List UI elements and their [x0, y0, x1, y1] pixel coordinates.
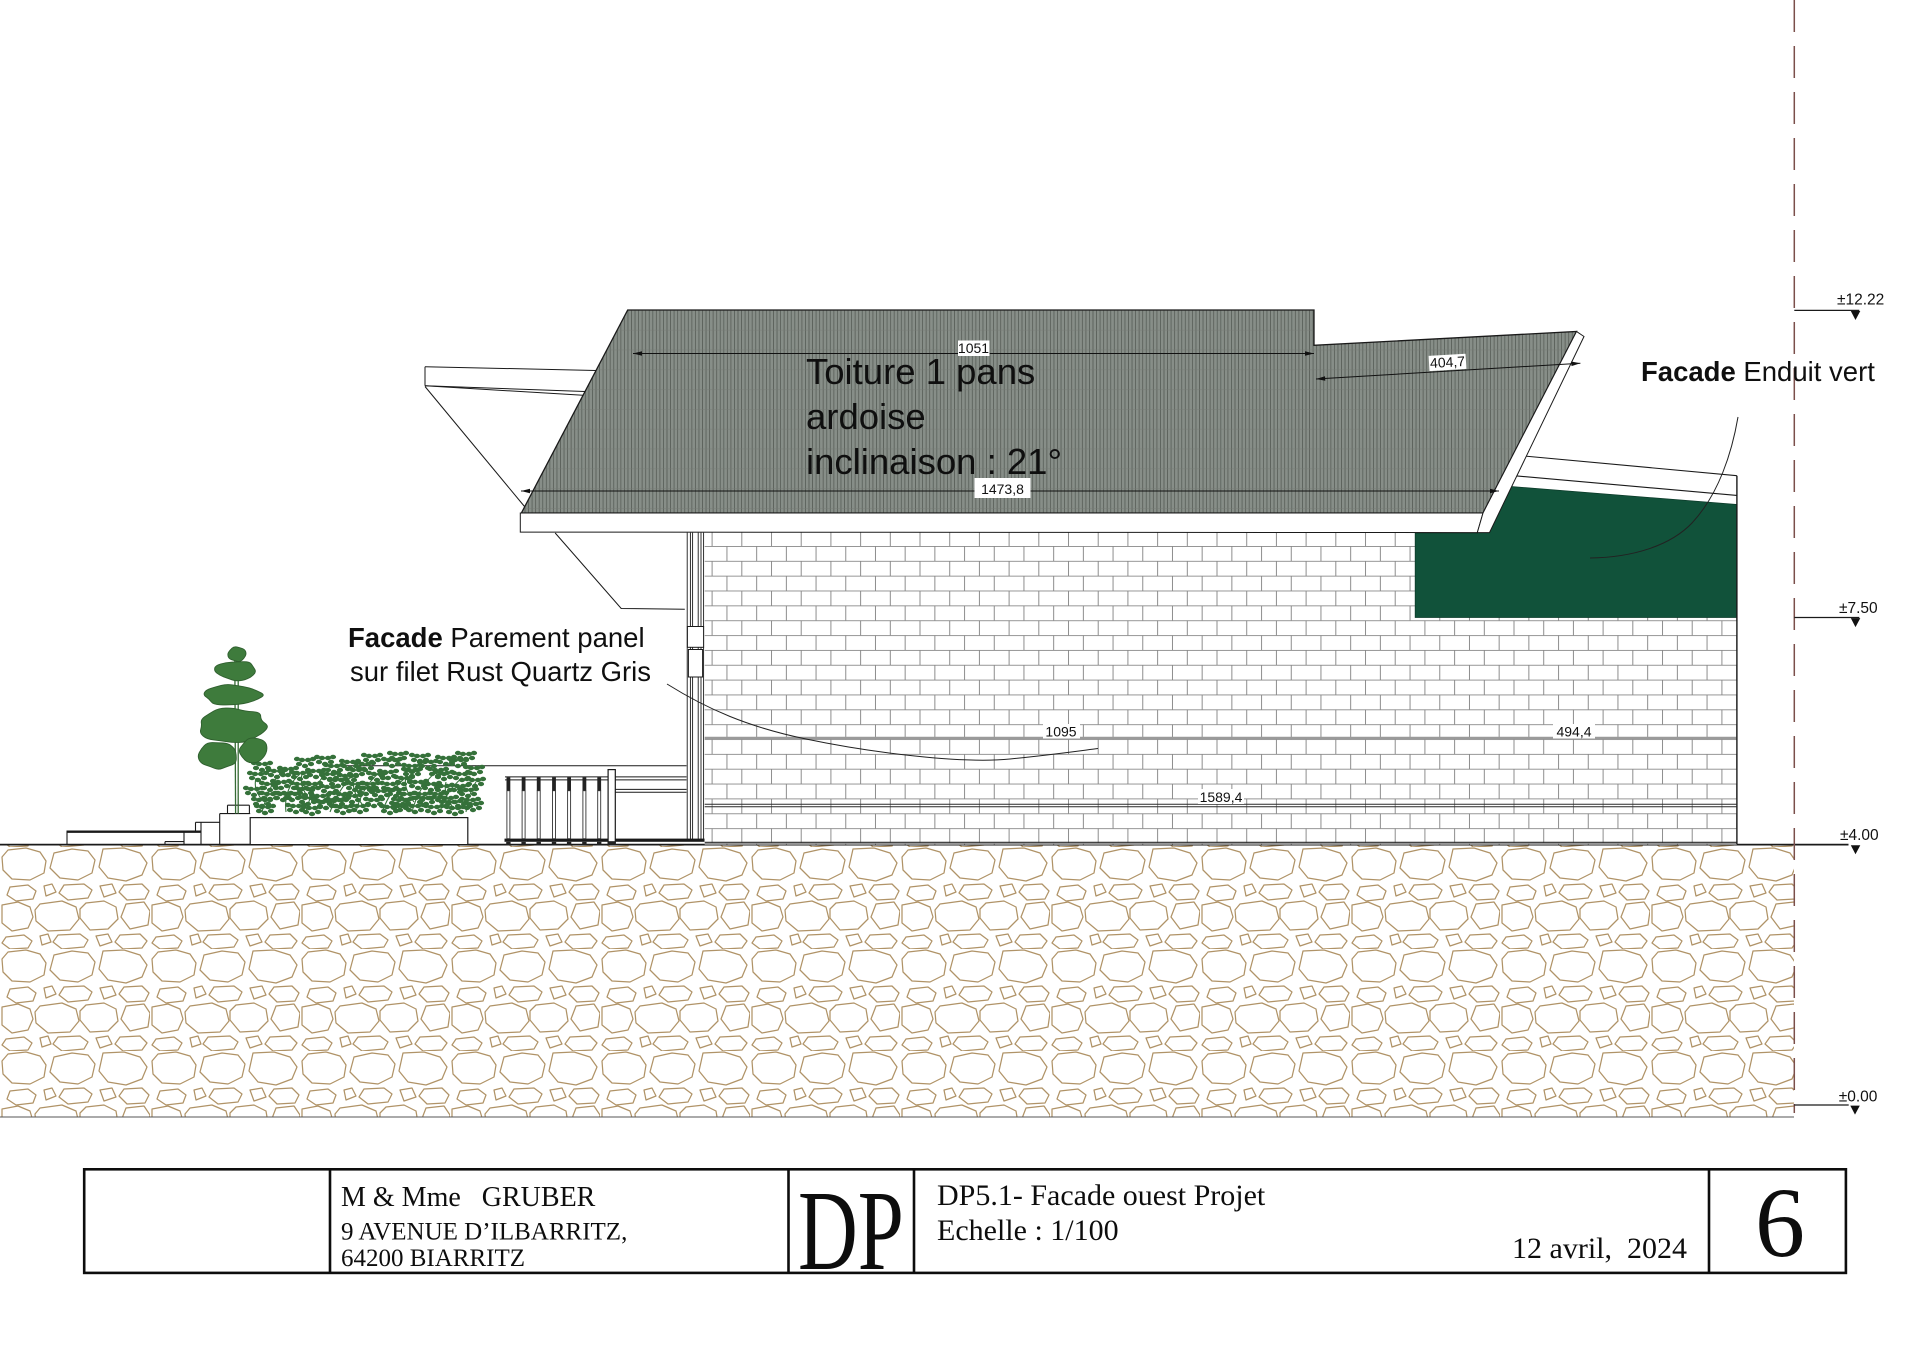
svg-text:6: 6	[1755, 1167, 1805, 1278]
svg-text:inclinaison : 21°: inclinaison : 21°	[806, 441, 1062, 482]
svg-text:ardoise: ardoise	[806, 396, 926, 437]
svg-text:±0.00: ±0.00	[1839, 1088, 1878, 1105]
svg-text:404,7: 404,7	[1430, 353, 1466, 371]
svg-text:1473,8: 1473,8	[981, 481, 1024, 497]
svg-text:Echelle : 1/100: Echelle : 1/100	[937, 1214, 1119, 1247]
svg-text:Facade Enduit vert: Facade Enduit vert	[1641, 356, 1875, 387]
svg-text:±4.00: ±4.00	[1840, 827, 1879, 844]
svg-text:±12.22: ±12.22	[1837, 292, 1884, 309]
svg-text:12 avril, 2024: 12 avril, 2024	[1512, 1232, 1687, 1265]
svg-text:sur filet Rust Quartz Gris: sur filet Rust Quartz Gris	[350, 656, 651, 687]
svg-text:64200 BIARRITZ: 64200 BIARRITZ	[341, 1245, 525, 1272]
svg-text:DP5.1- Facade ouest Projet: DP5.1- Facade ouest Projet	[937, 1179, 1266, 1212]
svg-text:Facade Parement panel: Facade Parement panel	[348, 622, 645, 653]
svg-text:DP: DP	[798, 1167, 904, 1294]
svg-text:1095: 1095	[1045, 723, 1076, 739]
svg-text:9 AVENUE D’ILBARRITZ,: 9 AVENUE D’ILBARRITZ,	[341, 1219, 627, 1246]
svg-text:494,4: 494,4	[1556, 723, 1591, 739]
svg-text:M & Mme GRUBER: M & Mme GRUBER	[341, 1182, 596, 1213]
svg-text:Toiture 1 pans: Toiture 1 pans	[806, 351, 1035, 392]
svg-text:±7.50: ±7.50	[1839, 600, 1878, 617]
svg-text:1589,4: 1589,4	[1200, 789, 1243, 805]
